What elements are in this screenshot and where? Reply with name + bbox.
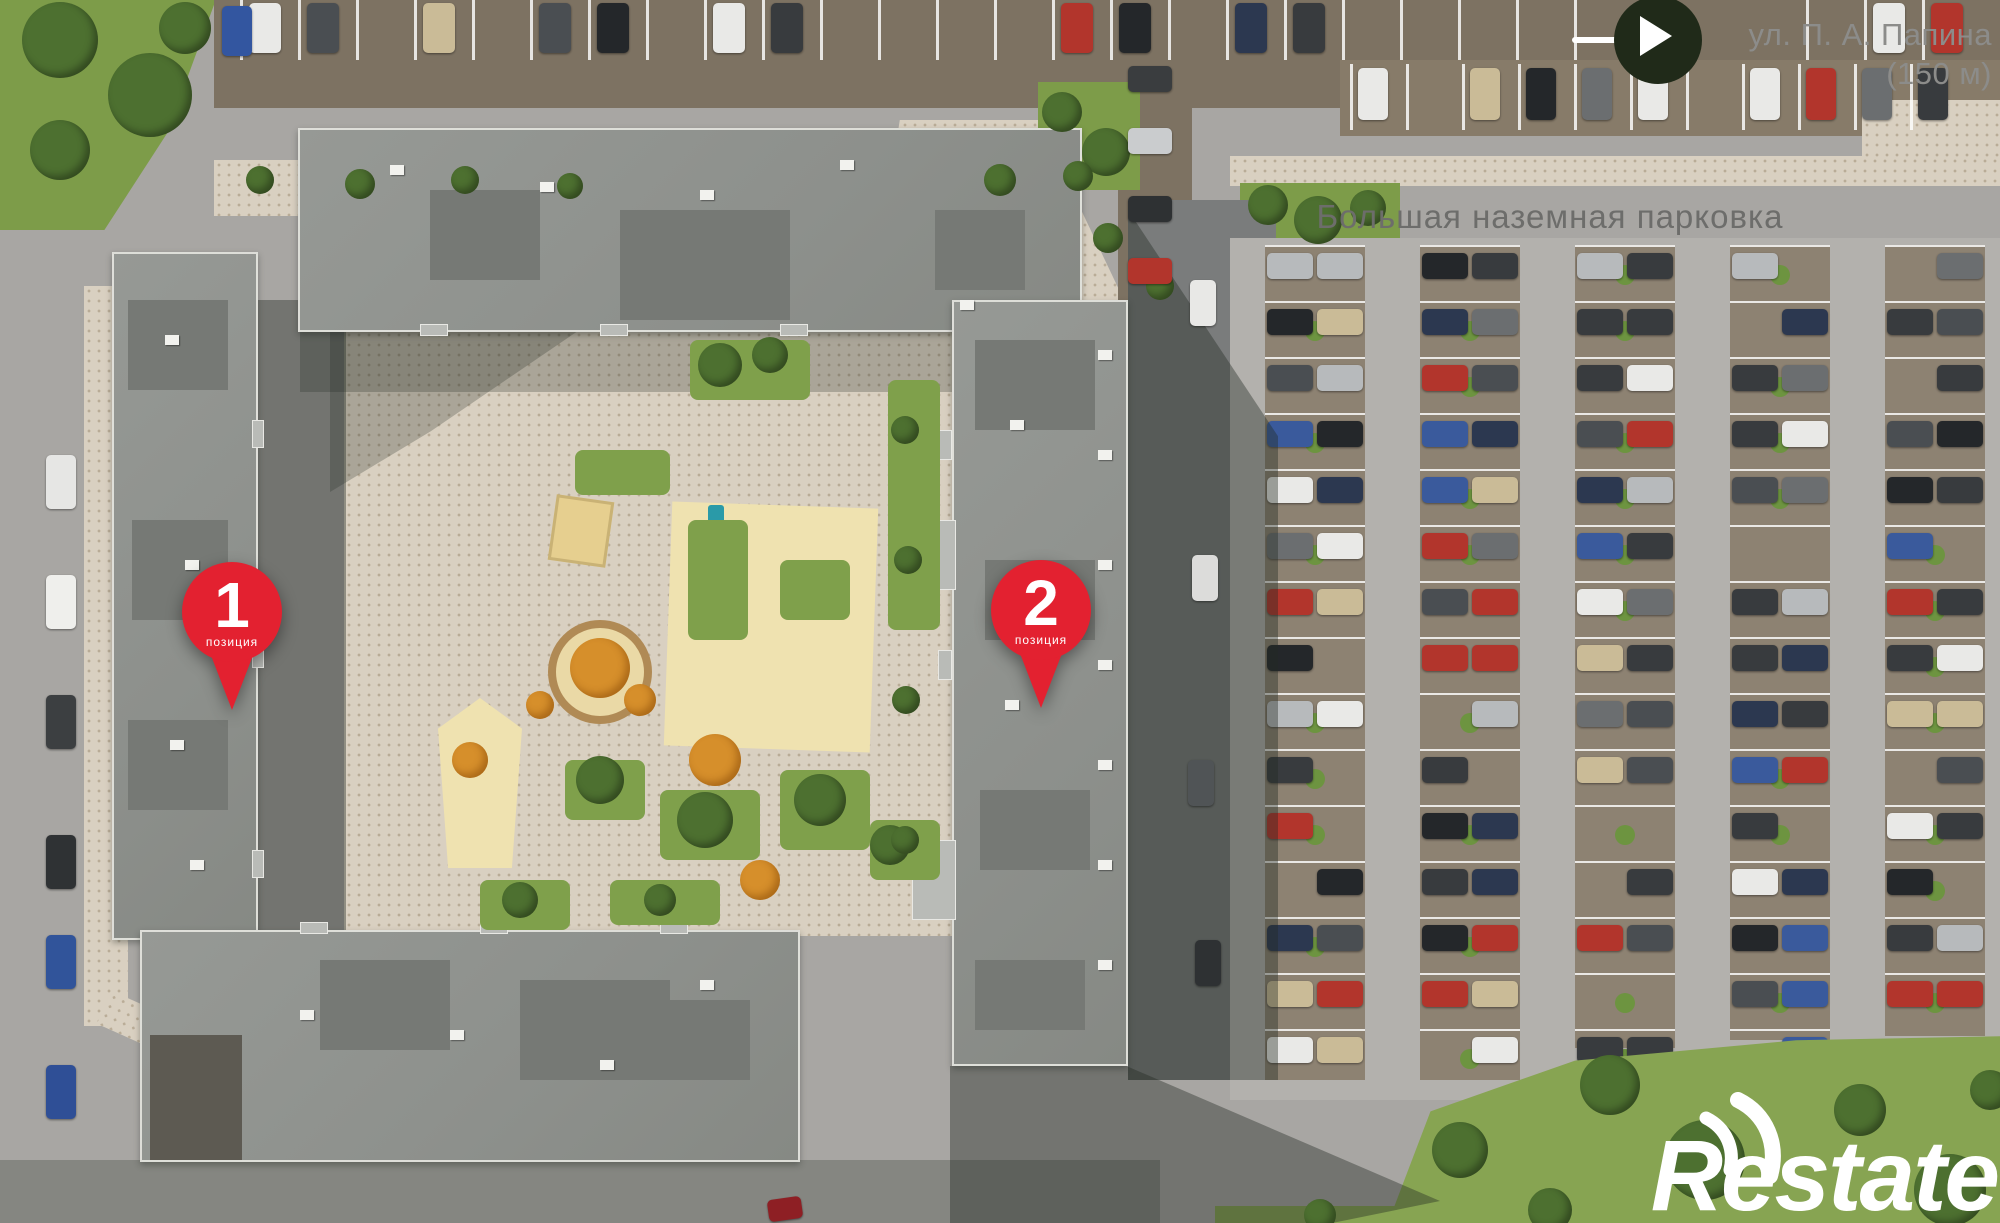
tree (752, 337, 788, 373)
stall-divider (1168, 0, 1171, 60)
tree (1304, 1199, 1336, 1223)
tree (526, 691, 554, 719)
stall-divider (414, 0, 417, 60)
stall-divider (1516, 0, 1519, 60)
lawn-patch (888, 380, 940, 630)
tree (22, 2, 98, 78)
stall-divider (1226, 0, 1229, 60)
tree (451, 166, 479, 194)
tree (345, 169, 375, 199)
stall-divider (356, 0, 359, 60)
tree (1042, 92, 1082, 132)
pin-2-number: 2 (1023, 573, 1059, 634)
tree (502, 882, 538, 918)
site-plan-render: ул. П. А. Папина (150 м) Большая наземна… (0, 0, 2000, 1223)
stall-divider (1052, 0, 1055, 60)
tree (892, 686, 920, 714)
logo-text: Restate (1651, 1120, 1998, 1223)
car (1061, 3, 1093, 53)
car (423, 3, 455, 53)
car (771, 3, 803, 53)
tree (246, 166, 274, 194)
stall-divider (1342, 0, 1345, 60)
car (1293, 3, 1325, 53)
tree (557, 173, 583, 199)
position-pin-1[interactable]: 1 позиция (182, 562, 282, 710)
tree (891, 416, 919, 444)
stall-divider (704, 0, 707, 60)
tree (30, 120, 90, 180)
pin-1-caption: позиция (206, 635, 258, 649)
street-label-line1: ул. П. А. Папина (1700, 16, 1992, 55)
tree (452, 742, 488, 778)
tree (891, 826, 919, 854)
stall-divider (1574, 0, 1577, 60)
car (46, 695, 76, 749)
lawn-patch (780, 560, 850, 620)
car (46, 835, 76, 889)
tree (984, 164, 1016, 196)
car (307, 3, 339, 53)
restate-watermark: Restate (1642, 1092, 2000, 1223)
street-label-line2: (150 м) (1700, 55, 1992, 94)
car (1582, 68, 1612, 120)
stall-divider (1400, 0, 1403, 60)
car (767, 1196, 804, 1223)
stall-divider (1518, 64, 1521, 130)
tree (159, 2, 211, 54)
stall-divider (530, 0, 533, 60)
car (713, 3, 745, 53)
car (1470, 68, 1500, 120)
tree (677, 792, 733, 848)
stall-divider (936, 0, 939, 60)
car (1235, 3, 1267, 53)
car (46, 455, 76, 509)
street-label: ул. П. А. Папина (150 м) (1700, 16, 1992, 94)
pin-1-number: 1 (214, 575, 250, 636)
stall-divider (472, 0, 475, 60)
stall-divider (588, 0, 591, 60)
tree (698, 343, 742, 387)
stall-divider (298, 0, 301, 60)
stall-divider (1574, 64, 1577, 130)
tree (1432, 1122, 1488, 1178)
tree (1093, 223, 1123, 253)
car (1190, 280, 1216, 326)
tree (108, 53, 192, 137)
pin-2-caption: позиция (1015, 633, 1067, 647)
car (1188, 760, 1214, 806)
tree (894, 546, 922, 574)
car (46, 935, 76, 989)
car (539, 3, 571, 53)
tree (794, 774, 846, 826)
stall-divider (1110, 0, 1113, 60)
stall-divider (1462, 64, 1465, 130)
car (1128, 128, 1172, 154)
car (1128, 196, 1172, 222)
car (1195, 940, 1221, 986)
car (222, 6, 252, 56)
stall-divider (820, 0, 823, 60)
lawn-patch (575, 450, 670, 495)
car (597, 3, 629, 53)
position-pin-2[interactable]: 2 позиция (991, 560, 1091, 708)
stall-divider (1458, 0, 1461, 60)
car (46, 575, 76, 629)
pin-2-head: 2 позиция (991, 560, 1091, 660)
tree (1528, 1188, 1572, 1223)
tree (644, 884, 676, 916)
car (46, 1065, 76, 1119)
direction-arrow-icon (1614, 0, 1702, 84)
car (1358, 68, 1388, 120)
stall-divider (878, 0, 881, 60)
pin-1-head: 1 позиция (182, 562, 282, 662)
tree (1580, 1055, 1640, 1115)
stall-divider (1284, 0, 1287, 60)
car (1119, 3, 1151, 53)
tree (1063, 161, 1093, 191)
car (1128, 258, 1172, 284)
stall-divider (994, 0, 997, 60)
parking-label: Большая наземная парковка (1280, 198, 1820, 236)
car (1526, 68, 1556, 120)
stall-divider (1686, 64, 1689, 130)
lawn-patch (688, 520, 748, 640)
tree (689, 734, 741, 786)
car (1192, 555, 1218, 601)
stall-divider (646, 0, 649, 60)
car (1128, 66, 1172, 92)
tree (624, 684, 656, 716)
tree (740, 860, 780, 900)
tree (576, 756, 624, 804)
car (249, 3, 281, 53)
tree (570, 638, 630, 698)
stall-divider (1406, 64, 1409, 130)
stall-divider (762, 0, 765, 60)
stall-divider (1350, 64, 1353, 130)
